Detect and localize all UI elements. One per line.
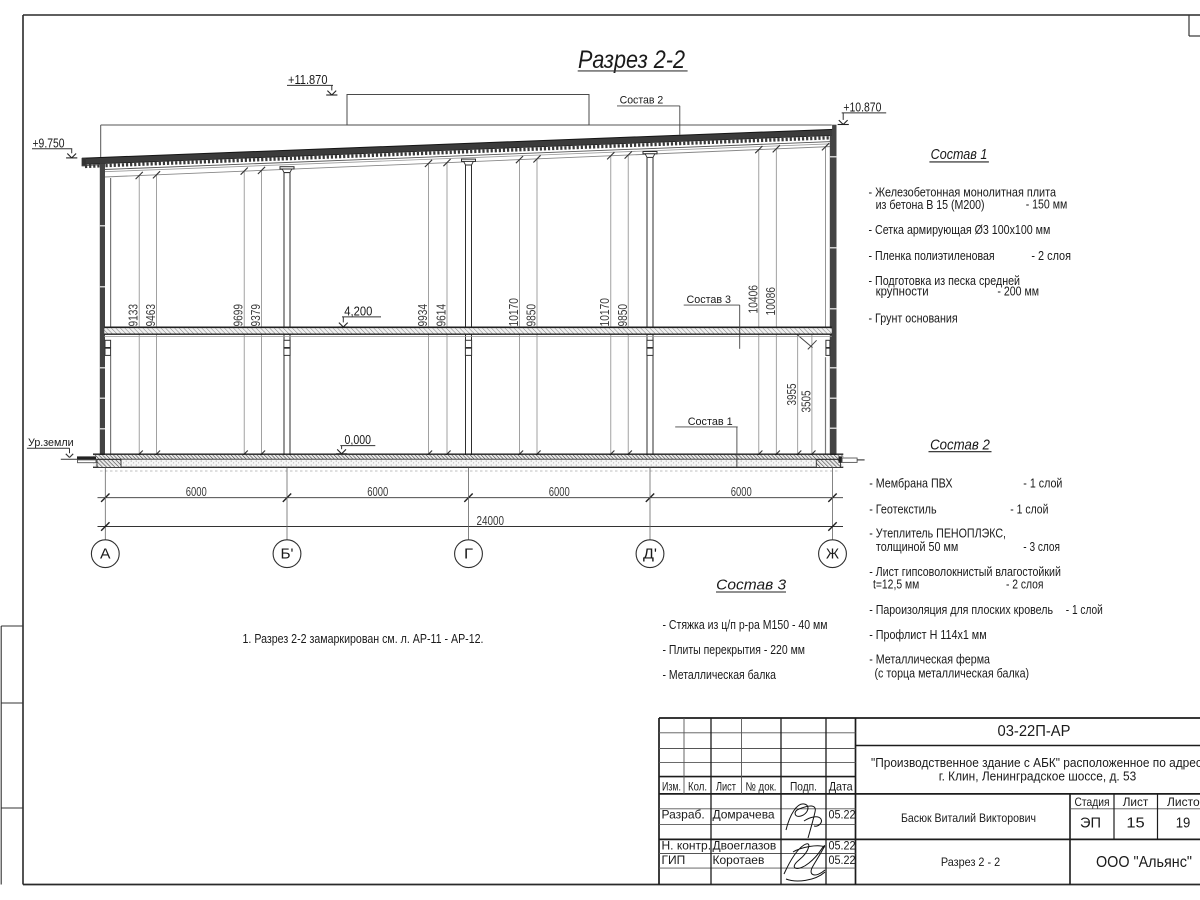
svg-text:Дата: Дата (829, 780, 853, 794)
svg-text:- 2 слоя: - 2 слоя (1031, 249, 1071, 263)
svg-text:Состав 1: Состав 1 (688, 416, 733, 428)
svg-text:- 2 слоя: - 2 слоя (1006, 578, 1044, 592)
svg-text:Г: Г (464, 547, 473, 563)
svg-text:Лист: Лист (1123, 795, 1149, 809)
svg-text:Разрез 2-2: Разрез 2-2 (578, 46, 685, 74)
svg-text:Изм.: Изм. (662, 780, 681, 794)
svg-text:- Плиты перекрытия - 220 мм: - Плиты перекрытия - 220 мм (663, 643, 806, 657)
svg-text:Разраб.: Разраб. (662, 808, 705, 822)
svg-text:Кол.: Кол. (688, 780, 707, 794)
svg-text:- Грунт основания: - Грунт основания (869, 311, 958, 325)
svg-text:- Металлическая балка: - Металлическая балка (663, 668, 777, 682)
svg-text:19: 19 (1176, 815, 1191, 832)
svg-text:9850: 9850 (615, 304, 630, 327)
svg-text:3505: 3505 (798, 391, 813, 413)
svg-text:крупности: крупности (876, 285, 929, 299)
svg-text:Двоеглазов: Двоеглазов (713, 839, 777, 853)
svg-text:Домрачева: Домрачева (713, 808, 775, 822)
svg-text:"Производственное здание с АБК: "Производственное здание с АБК" располож… (871, 756, 1200, 770)
svg-text:Разрез 2 - 2: Разрез 2 - 2 (941, 855, 1001, 869)
svg-text:- Геотекстиль: - Геотекстиль (869, 503, 936, 517)
svg-text:6000: 6000 (731, 484, 752, 499)
svg-text:+10.870: +10.870 (843, 100, 881, 114)
svg-text:Состав 1: Состав 1 (931, 147, 988, 163)
svg-text:- Утеплитель ПЕНОПЛЭКС,: - Утеплитель ПЕНОПЛЭКС, (869, 526, 1006, 540)
svg-text:6000: 6000 (186, 484, 207, 499)
svg-text:6000: 6000 (549, 484, 570, 499)
svg-text:9133: 9133 (126, 304, 141, 327)
svg-text:05.22: 05.22 (829, 839, 856, 853)
svg-text:ГИП: ГИП (662, 853, 686, 867)
svg-text:- Пленка полиэтиленовая: - Пленка полиэтиленовая (869, 249, 995, 263)
svg-text:- Стяжка из ц/п р-ра М150 - 40: - Стяжка из ц/п р-ра М150 - 40 мм (663, 618, 828, 632)
svg-text:ООО "Альянс": ООО "Альянс" (1096, 854, 1192, 871)
svg-text:05.22: 05.22 (829, 808, 856, 822)
svg-text:Состав 3: Состав 3 (687, 294, 732, 306)
svg-text:10170: 10170 (597, 298, 612, 327)
svg-text:Состав 2: Состав 2 (930, 438, 990, 454)
svg-text:+11.870: +11.870 (288, 73, 328, 87)
svg-text:9934: 9934 (415, 304, 430, 327)
svg-text:9463: 9463 (143, 304, 158, 327)
svg-text:Состав 2: Состав 2 (620, 95, 664, 107)
svg-text:9850: 9850 (524, 304, 539, 327)
svg-text:10170: 10170 (506, 298, 521, 327)
svg-text:Д': Д' (643, 547, 657, 563)
svg-text:Б': Б' (281, 547, 294, 563)
svg-text:- Сетка армирующая Ø3 100х100: - Сетка армирующая Ø3 100х100 мм (869, 223, 1051, 237)
svg-text:Листов: Листов (1167, 795, 1200, 809)
svg-text:ЭП: ЭП (1080, 815, 1101, 832)
svg-text:- Металлическая ферма: - Металлическая ферма (869, 653, 990, 667)
svg-text:- 3 слоя: - 3 слоя (1023, 540, 1060, 554)
svg-text:г. Клин, Ленинградское шоссе,: г. Клин, Ленинградское шоссе, д. 53 (939, 769, 1137, 783)
svg-text:- 1 слой: - 1 слой (1010, 503, 1048, 517)
svg-text:- Пароизоляция для плоских кро: - Пароизоляция для плоских кровель (869, 603, 1053, 617)
svg-text:24000: 24000 (477, 513, 505, 528)
svg-text:0,000: 0,000 (345, 433, 372, 447)
svg-text:Подп.: Подп. (790, 780, 817, 794)
svg-text:Ж: Ж (826, 547, 840, 563)
svg-text:05.22: 05.22 (829, 853, 856, 867)
svg-text:Лист: Лист (716, 780, 736, 794)
svg-text:Коротаев: Коротаев (713, 853, 765, 867)
svg-text:- 200 мм: - 200 мм (997, 285, 1039, 299)
svg-text:t=12,5 мм: t=12,5 мм (873, 578, 919, 592)
svg-text:- 1 слой: - 1 слой (1066, 603, 1103, 617)
svg-text:9614: 9614 (434, 304, 449, 327)
svg-text:Басюк Виталий Викторович: Басюк Виталий Викторович (901, 811, 1036, 825)
svg-text:(с торца металлическая балка): (с торца металлическая балка) (875, 666, 1030, 680)
svg-text:толщиной 50 мм: толщиной 50 мм (876, 540, 958, 554)
svg-text:15: 15 (1126, 815, 1144, 832)
svg-text:03-22П-АР: 03-22П-АР (998, 723, 1071, 740)
svg-text:- 150 мм: - 150 мм (1026, 198, 1068, 212)
svg-text:Стадия: Стадия (1075, 795, 1110, 809)
svg-text:6000: 6000 (367, 484, 388, 499)
svg-text:- 1 слой: - 1 слой (1023, 477, 1062, 491)
svg-text:- Мембрана ПВХ: - Мембрана ПВХ (869, 477, 953, 491)
svg-text:3955: 3955 (784, 384, 799, 406)
svg-text:Состав 3: Состав 3 (716, 578, 786, 594)
svg-text:10406: 10406 (745, 285, 760, 314)
svg-text:9379: 9379 (248, 304, 263, 327)
svg-text:А: А (100, 547, 111, 563)
svg-text:из бетона В 15 (М200): из бетона В 15 (М200) (876, 198, 985, 212)
svg-text:10086: 10086 (763, 287, 778, 316)
svg-text:- Профлист Н 114х1 мм: - Профлист Н 114х1 мм (869, 628, 986, 642)
svg-text:Ур.земли: Ур.земли (28, 437, 74, 449)
svg-text:1. Разрез 2-2 замаркирован см.: 1. Разрез 2-2 замаркирован см. л. АР-11 … (243, 632, 484, 646)
svg-text:4,200: 4,200 (344, 304, 372, 318)
svg-text:9699: 9699 (231, 304, 246, 327)
svg-text:Н. контр.: Н. контр. (662, 839, 712, 853)
svg-text:№ док.: № док. (746, 780, 777, 794)
